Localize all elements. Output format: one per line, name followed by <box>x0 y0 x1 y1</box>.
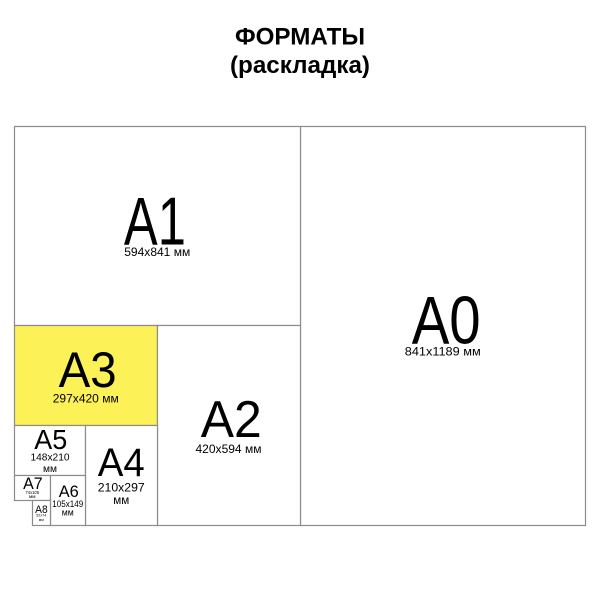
svg-text:мм: мм <box>113 493 129 507</box>
svg-text:52х74: 52х74 <box>36 514 46 518</box>
svg-text:А3: А3 <box>59 341 117 398</box>
svg-text:мм: мм <box>29 494 36 499</box>
svg-text:мм: мм <box>62 508 74 518</box>
svg-text:420х594 мм: 420х594 мм <box>196 442 262 456</box>
svg-text:841х1189 мм: 841х1189 мм <box>405 345 481 359</box>
svg-text:594х841 мм: 594х841 мм <box>124 245 190 259</box>
svg-text:А4: А4 <box>98 441 145 485</box>
svg-text:ФОРМАТЫ: ФОРМАТЫ <box>235 24 365 51</box>
svg-text:мм: мм <box>39 518 44 522</box>
svg-text:148х210: 148х210 <box>31 452 70 464</box>
svg-text:А5: А5 <box>34 424 67 455</box>
svg-text:297х420 мм: 297х420 мм <box>53 391 119 405</box>
svg-text:мм: мм <box>43 463 57 475</box>
svg-text:А2: А2 <box>201 391 262 449</box>
svg-text:(раскладка): (раскладка) <box>230 52 370 79</box>
